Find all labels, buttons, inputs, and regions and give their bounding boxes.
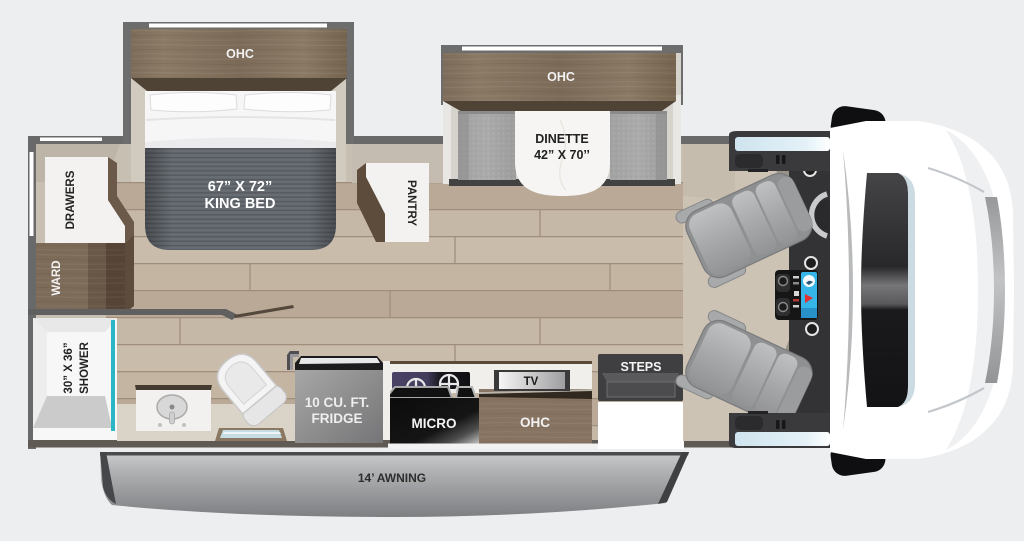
svg-text:STEPS: STEPS	[621, 360, 662, 374]
svg-text:DINETTE: DINETTE	[535, 132, 588, 146]
svg-text:FRIDGE: FRIDGE	[311, 411, 362, 426]
svg-text:10 CU. FT.: 10 CU. FT.	[305, 395, 370, 410]
svg-text:OHC: OHC	[520, 415, 550, 430]
svg-text:PANTRY: PANTRY	[405, 180, 417, 226]
svg-text:67” X 72”: 67” X 72”	[208, 179, 273, 195]
svg-text:MICRO: MICRO	[412, 416, 457, 431]
svg-text:SHOWER: SHOWER	[79, 341, 91, 393]
svg-text:42” X 70’’: 42” X 70’’	[534, 148, 590, 162]
svg-text:TV: TV	[524, 376, 539, 388]
svg-text:OHC: OHC	[547, 70, 575, 84]
svg-text:14’ AWNING: 14’ AWNING	[358, 471, 426, 485]
svg-text:KING BED: KING BED	[205, 196, 276, 212]
svg-text:30” X 36”: 30” X 36”	[63, 342, 75, 393]
svg-text:OHC: OHC	[226, 47, 254, 61]
svg-text:WARD: WARD	[51, 260, 63, 295]
svg-text:DRAWERS: DRAWERS	[65, 170, 77, 229]
